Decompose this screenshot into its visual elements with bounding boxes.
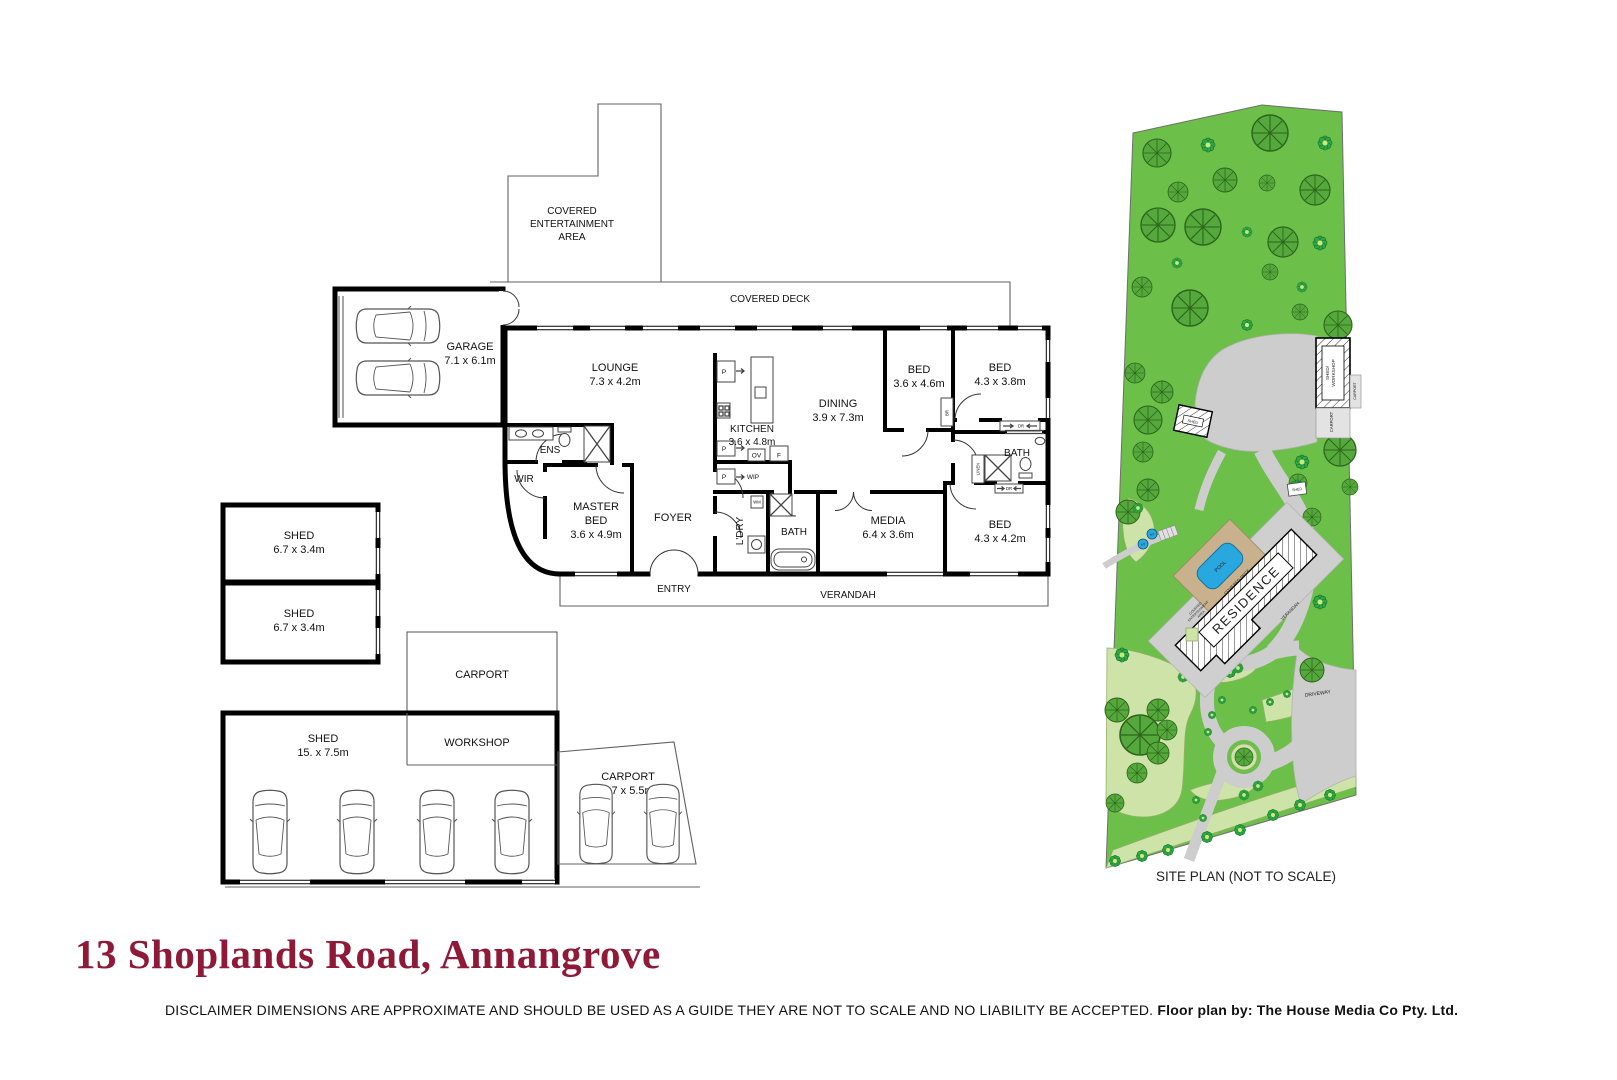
bath2-label: BATH xyxy=(781,527,807,538)
outbuildings: SHED 6.7 x 3.4m SHED 6.7 x 3.4m CARPORT … xyxy=(223,505,700,887)
bed1-label: BED xyxy=(908,364,931,376)
site-shed-workshop: SHED/ WORKSHOP CARPORT CARPORT xyxy=(1316,338,1361,438)
shed2-label: SHED xyxy=(284,608,315,620)
svg-text:15. x 7.5m: 15. x 7.5m xyxy=(297,747,348,759)
ens-label: ENS xyxy=(540,445,561,456)
pantry-label-3: P xyxy=(722,474,726,481)
covered-deck-outline xyxy=(490,282,1010,328)
carport2-label: CARPORT xyxy=(601,771,655,783)
svg-text:3.6 x 4.9m: 3.6 x 4.9m xyxy=(570,529,621,541)
svg-text:AREA: AREA xyxy=(558,232,586,243)
site-carport-label-b: CARPORT xyxy=(1353,381,1357,399)
verandah-outline xyxy=(560,574,1048,606)
svg-text:6.7 x 3.4m: 6.7 x 3.4m xyxy=(273,544,324,556)
wt-label-1: WT xyxy=(1141,542,1146,546)
svg-text:WORKSHOP: WORKSHOP xyxy=(1331,359,1336,386)
covered-entertainment-outline xyxy=(508,104,661,282)
oven-label: OV xyxy=(752,453,762,460)
bed2-label: BED xyxy=(989,362,1012,374)
svg-text:7.3 x 4.2m: 7.3 x 4.2m xyxy=(589,376,640,388)
floorplan-canvas: POOL RESIDENCE COVERED DECK VERANDAH COV… xyxy=(0,0,1617,1080)
washer-label: WM xyxy=(753,500,761,505)
svg-text:7.1 x 6.1m: 7.1 x 6.1m xyxy=(444,355,495,367)
media-label: MEDIA xyxy=(871,515,907,527)
site-carport-label-a: CARPORT xyxy=(1329,411,1334,432)
sliding-robe-label-2: DR xyxy=(1006,486,1012,491)
svg-text:6.4 x 3.6m: 6.4 x 3.6m xyxy=(862,529,913,541)
wir-label: WIR xyxy=(514,474,533,485)
svg-text:4.3 x 3.8m: 4.3 x 3.8m xyxy=(974,376,1025,388)
covered-deck-label: COVERED DECK xyxy=(730,294,810,305)
wt-label-2: WT xyxy=(1150,532,1155,536)
garage-label: GARAGE xyxy=(446,341,493,353)
kitchen-label: KITCHEN xyxy=(730,424,774,435)
page-title: 13 Shoplands Road, Annangrove xyxy=(75,930,661,978)
bath1-label: BATH xyxy=(1004,448,1030,459)
dining-label: DINING xyxy=(819,398,858,410)
pantry-label-2: P xyxy=(722,446,726,453)
svg-text:SHED/: SHED/ xyxy=(1325,365,1330,380)
svg-text:3.6 x 4.8m: 3.6 x 4.8m xyxy=(729,437,776,448)
sliding-robe-label-1: DR xyxy=(1018,424,1024,429)
disclaimer-credit: Floor plan by: The House Media Co Pty. L… xyxy=(1157,1002,1458,1018)
wip-label: WIP xyxy=(747,474,759,481)
ldry-label: L'DRY xyxy=(735,516,746,545)
utility-pad xyxy=(1186,628,1198,641)
foyer-label: FOYER xyxy=(654,512,692,524)
covered-entertainment-label: COVERED xyxy=(547,206,596,217)
svg-text:BED: BED xyxy=(585,515,608,527)
master-bed-label: MASTER xyxy=(573,501,619,513)
robe-label: BR xyxy=(945,410,950,416)
svg-text:4.3 x 4.2m: 4.3 x 4.2m xyxy=(974,533,1025,545)
site-plan: POOL RESIDENCE COVERED DECK VERANDAH COV… xyxy=(1104,105,1361,884)
workshop-label: WORKSHOP xyxy=(444,737,509,749)
svg-text:6.7 x 3.4m: 6.7 x 3.4m xyxy=(273,622,324,634)
svg-text:3.9 x 7.3m: 3.9 x 7.3m xyxy=(812,412,863,424)
pantry-label-1: P xyxy=(722,369,726,376)
lounge-label: LOUNGE xyxy=(592,362,638,374)
carport1-label: CARPORT xyxy=(455,669,509,681)
linen-label: LINEN xyxy=(976,463,981,475)
verandah-label: VERANDAH xyxy=(820,590,876,601)
big-shed-label: SHED xyxy=(308,733,339,745)
fridge-label: F xyxy=(777,453,781,460)
svg-text:ENTERTAINMENT: ENTERTAINMENT xyxy=(530,219,614,230)
disclaimer-text: DISCLAIMER DIMENSIONS ARE APPROXIMATE AN… xyxy=(165,1002,1157,1018)
svg-text:3.6 x 4.6m: 3.6 x 4.6m xyxy=(893,378,944,390)
siteplan-caption: SITE PLAN (NOT TO SCALE) xyxy=(1156,869,1336,884)
disclaimer: DISCLAIMER DIMENSIONS ARE APPROXIMATE AN… xyxy=(165,1002,1458,1018)
floor-plan: COVERED ENTERTAINMENT AREA COVERED DECK … xyxy=(223,104,1051,887)
site-right-shed: SHED xyxy=(1287,482,1306,496)
bed3-label: BED xyxy=(989,519,1012,531)
entry-label: ENTRY xyxy=(657,584,691,595)
shed1-label: SHED xyxy=(284,530,315,542)
